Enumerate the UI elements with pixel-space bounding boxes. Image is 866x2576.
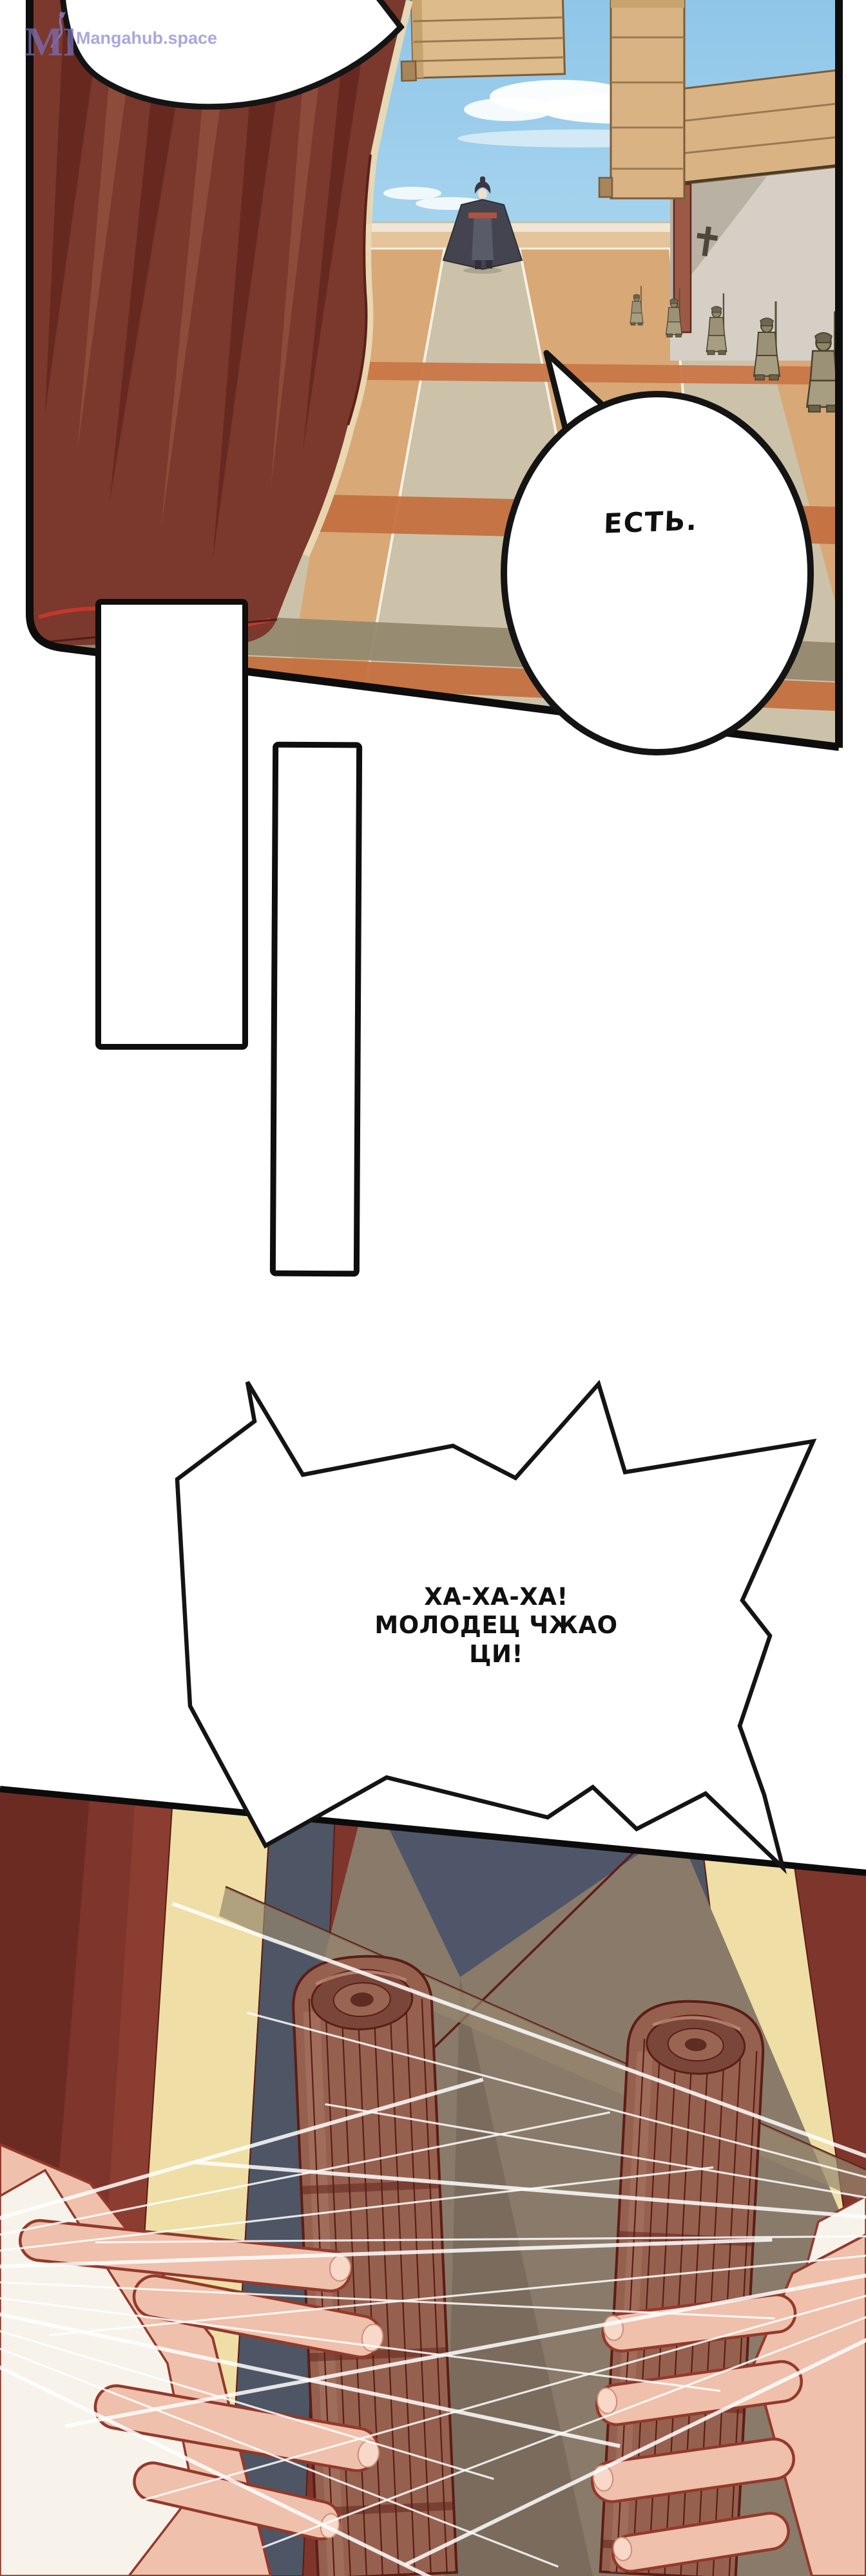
laugh-bubble-text: ХА-ХА-ХА! МОЛОДЕЦ ЧЖАО ЦИ! xyxy=(361,1583,631,1669)
scrolls-panel xyxy=(0,1784,866,2576)
panel-gap-rect-2 xyxy=(270,742,362,1277)
laugh-line-3: ЦИ! xyxy=(361,1640,631,1669)
mangahub-logo-icon: MH xyxy=(23,6,73,62)
manga-page: ЕСТЬ. xyxy=(0,0,866,2576)
panel-gap-rect-1 xyxy=(95,599,248,1050)
site-watermark: MH Mangahub.space xyxy=(23,6,217,62)
laugh-line-1: ХА-ХА-ХА! xyxy=(361,1583,631,1611)
laugh-line-2: МОЛОДЕЦ ЧЖАО xyxy=(361,1611,631,1640)
yes-sir-bubble-text: ЕСТЬ. xyxy=(573,504,729,540)
logo-initials: MH xyxy=(24,19,73,62)
watermark-site-name: Mangahub.space xyxy=(76,28,217,48)
